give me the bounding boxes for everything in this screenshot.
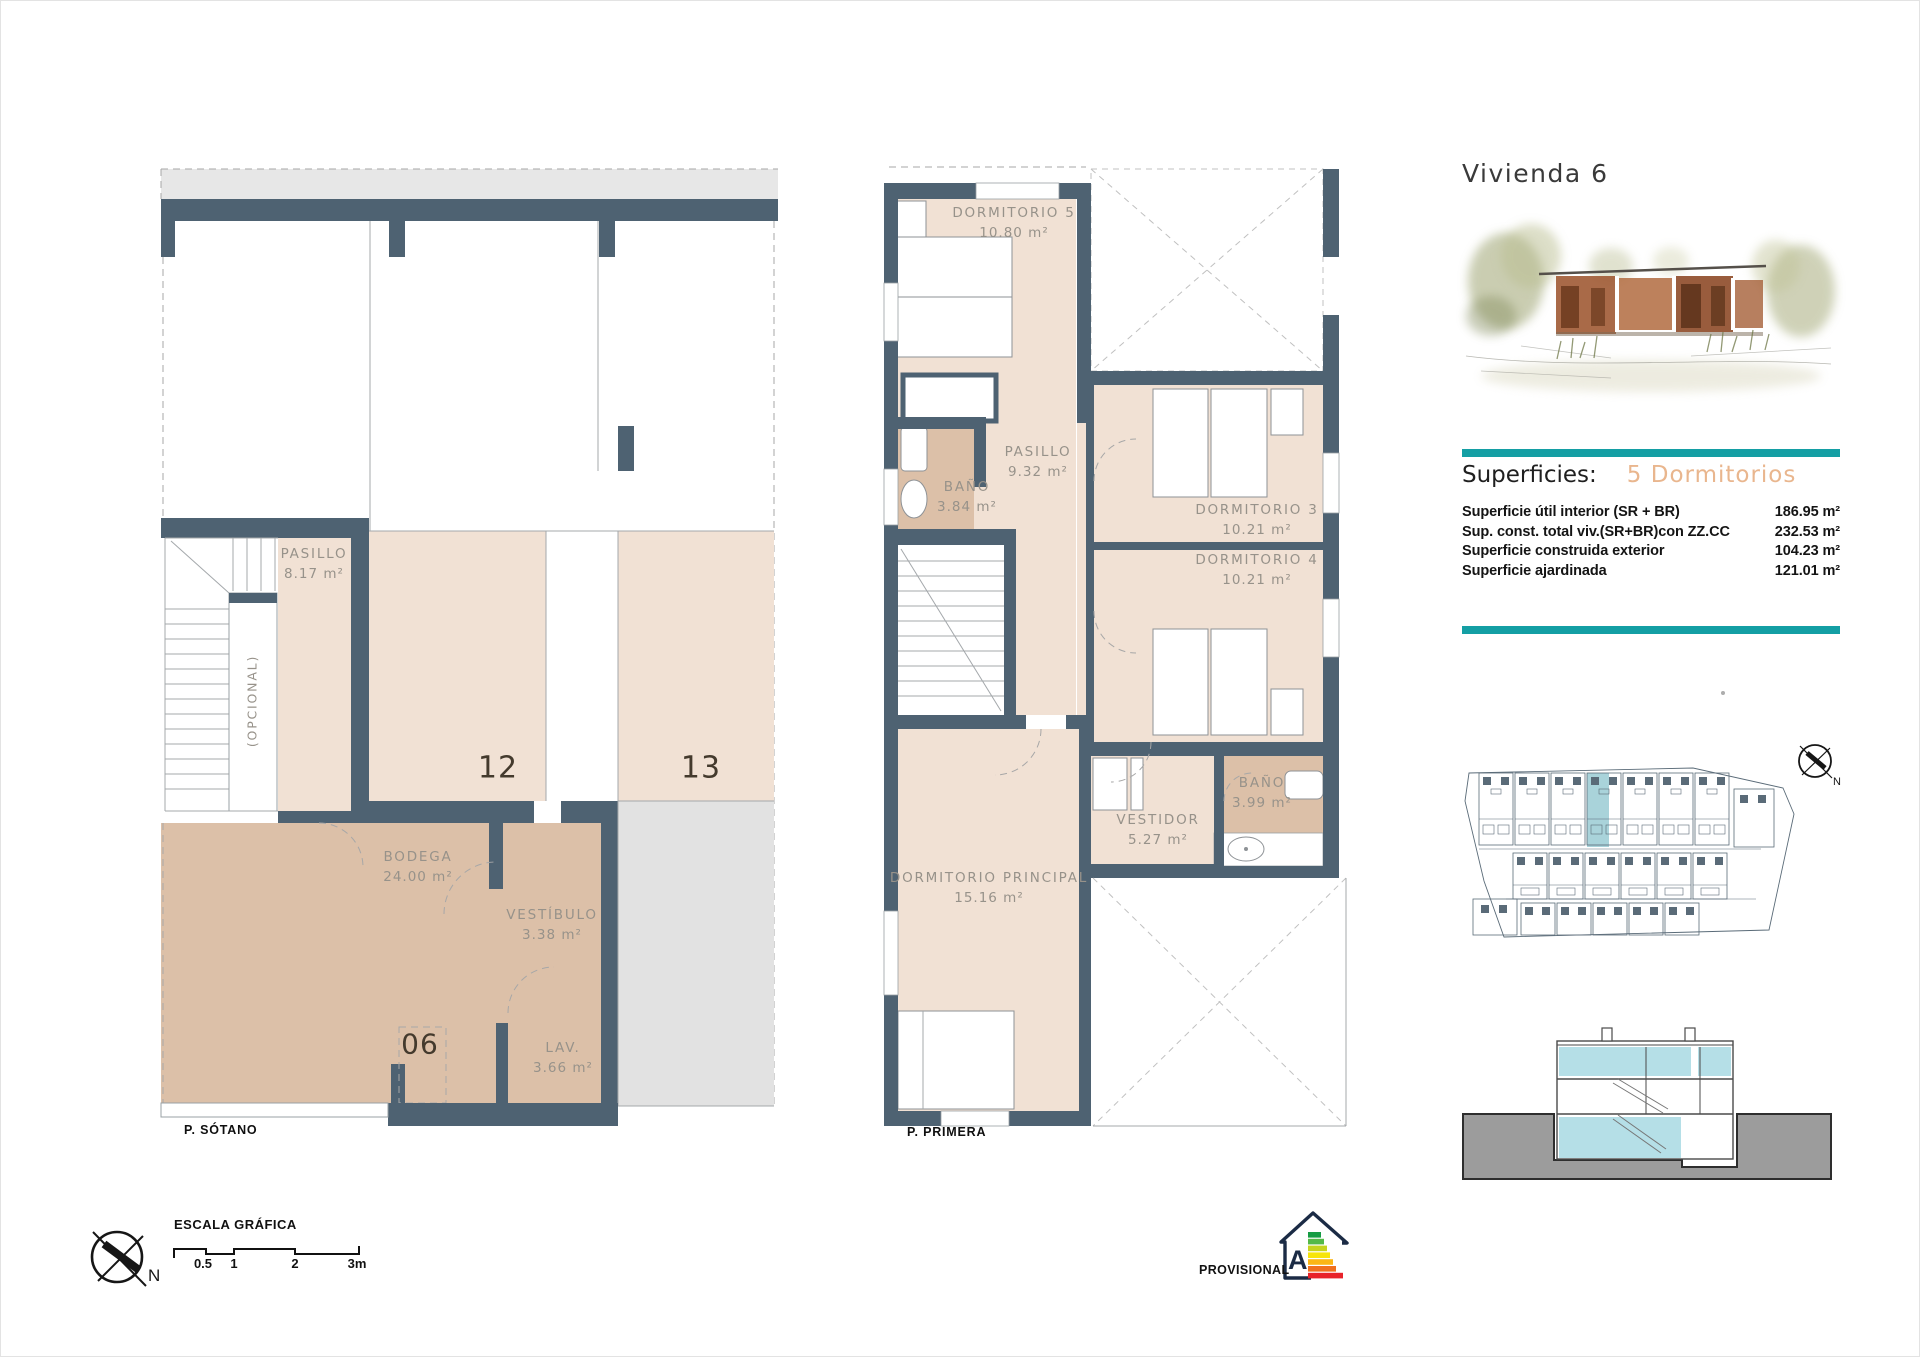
bay-number-12: 12 xyxy=(478,751,518,786)
room-label-bano1: BAÑO 3.84 m² xyxy=(937,477,997,518)
floor-label-primera: P. PRIMERA xyxy=(907,1125,986,1139)
row-value: 104.23 m² xyxy=(1775,543,1840,563)
north-label-main: N xyxy=(148,1266,160,1285)
superficies-heading: Superficies: xyxy=(1462,462,1597,488)
room-label-pasillo-sotano: PASILLO 8.17 m² xyxy=(281,544,348,585)
room-label-lav: LAV. 3.66 m² xyxy=(533,1038,593,1079)
room-label-pasillo-primera: PASILLO 9.32 m² xyxy=(1005,442,1072,483)
row-label: Superficie construida exterior xyxy=(1462,543,1664,563)
energy-letter: A xyxy=(1288,1245,1308,1275)
superficies-subtitle: 5 Dormitorios xyxy=(1627,462,1797,488)
scale-bar-title: ESCALA GRÁFICA xyxy=(174,1217,297,1232)
sotano-floorplan xyxy=(161,169,778,1126)
room-label-dormitorio3: DORMITORIO 3 10.21 m² xyxy=(1195,500,1318,541)
room-label-bano2: BAÑO 3.99 m² xyxy=(1232,773,1292,814)
site-compass-icon: N xyxy=(1799,745,1841,788)
table-row: Superficie ajardinada 121.01 m² xyxy=(1462,563,1840,583)
teal-rule-bottom xyxy=(1462,626,1840,634)
row-label: Superficie útil interior (SR + BR) xyxy=(1462,504,1680,524)
compass-icon: N xyxy=(92,1232,160,1286)
energy-rating-icon: A xyxy=(1281,1213,1347,1278)
plan-sheet: N N 0.5 1 2 3m A xyxy=(0,0,1920,1357)
row-label: Superficie ajardinada xyxy=(1462,563,1607,583)
room-label-dormitorio4: DORMITORIO 4 10.21 m² xyxy=(1195,550,1318,591)
room-label-vestidor: VESTIDOR 5.27 m² xyxy=(1116,810,1199,851)
room-label-dormitorio-principal: DORMITORIO PRINCIPAL 15.16 m² xyxy=(890,868,1088,909)
teal-rule-top xyxy=(1462,449,1840,457)
row-value: 186.95 m² xyxy=(1775,504,1840,524)
row-value: 121.01 m² xyxy=(1775,563,1840,583)
north-label-site: N xyxy=(1833,776,1841,788)
site-plan xyxy=(1465,768,1794,937)
superficies-table: Superficie útil interior (SR + BR) 186.9… xyxy=(1462,504,1840,582)
row-label: Sup. const. total viv.(SR+BR)con ZZ.CC xyxy=(1462,524,1730,544)
table-row: Sup. const. total viv.(SR+BR)con ZZ.CC 2… xyxy=(1462,524,1840,544)
section-drawing xyxy=(1463,1028,1831,1179)
room-label-dormitorio5: DORMITORIO 5 10.80 m² xyxy=(952,203,1075,244)
room-label-vestibulo: VESTÍBULO 3.38 m² xyxy=(506,905,598,946)
scale-tick-05: 0.5 xyxy=(194,1256,212,1271)
scale-bar-graphic: 0.5 1 2 3m xyxy=(174,1246,366,1271)
bay-number-13: 13 xyxy=(681,751,721,786)
provisional-label: PROVISIONAL xyxy=(1199,1263,1290,1277)
scale-tick-3m: 3m xyxy=(348,1256,367,1271)
watercolor-sketch xyxy=(1466,224,1835,392)
room-label-bodega: BODEGA 24.00 m² xyxy=(383,847,453,888)
room-label-opcional: (OPCIONAL) xyxy=(244,655,263,747)
bay-number-06: 06 xyxy=(401,1028,439,1061)
scale-tick-2: 2 xyxy=(291,1256,298,1271)
superficies-header: Superficies: 5 Dormitorios xyxy=(1462,462,1796,488)
floor-label-sotano: P. SÓTANO xyxy=(184,1123,257,1137)
table-row: Superficie útil interior (SR + BR) 186.9… xyxy=(1462,504,1840,524)
scale-tick-1: 1 xyxy=(230,1256,237,1271)
page-title: Vivienda 6 xyxy=(1462,159,1609,188)
table-row: Superficie construida exterior 104.23 m² xyxy=(1462,543,1840,563)
row-value: 232.53 m² xyxy=(1775,524,1840,544)
primera-floorplan xyxy=(884,167,1346,1126)
stray-mark xyxy=(1721,691,1725,695)
